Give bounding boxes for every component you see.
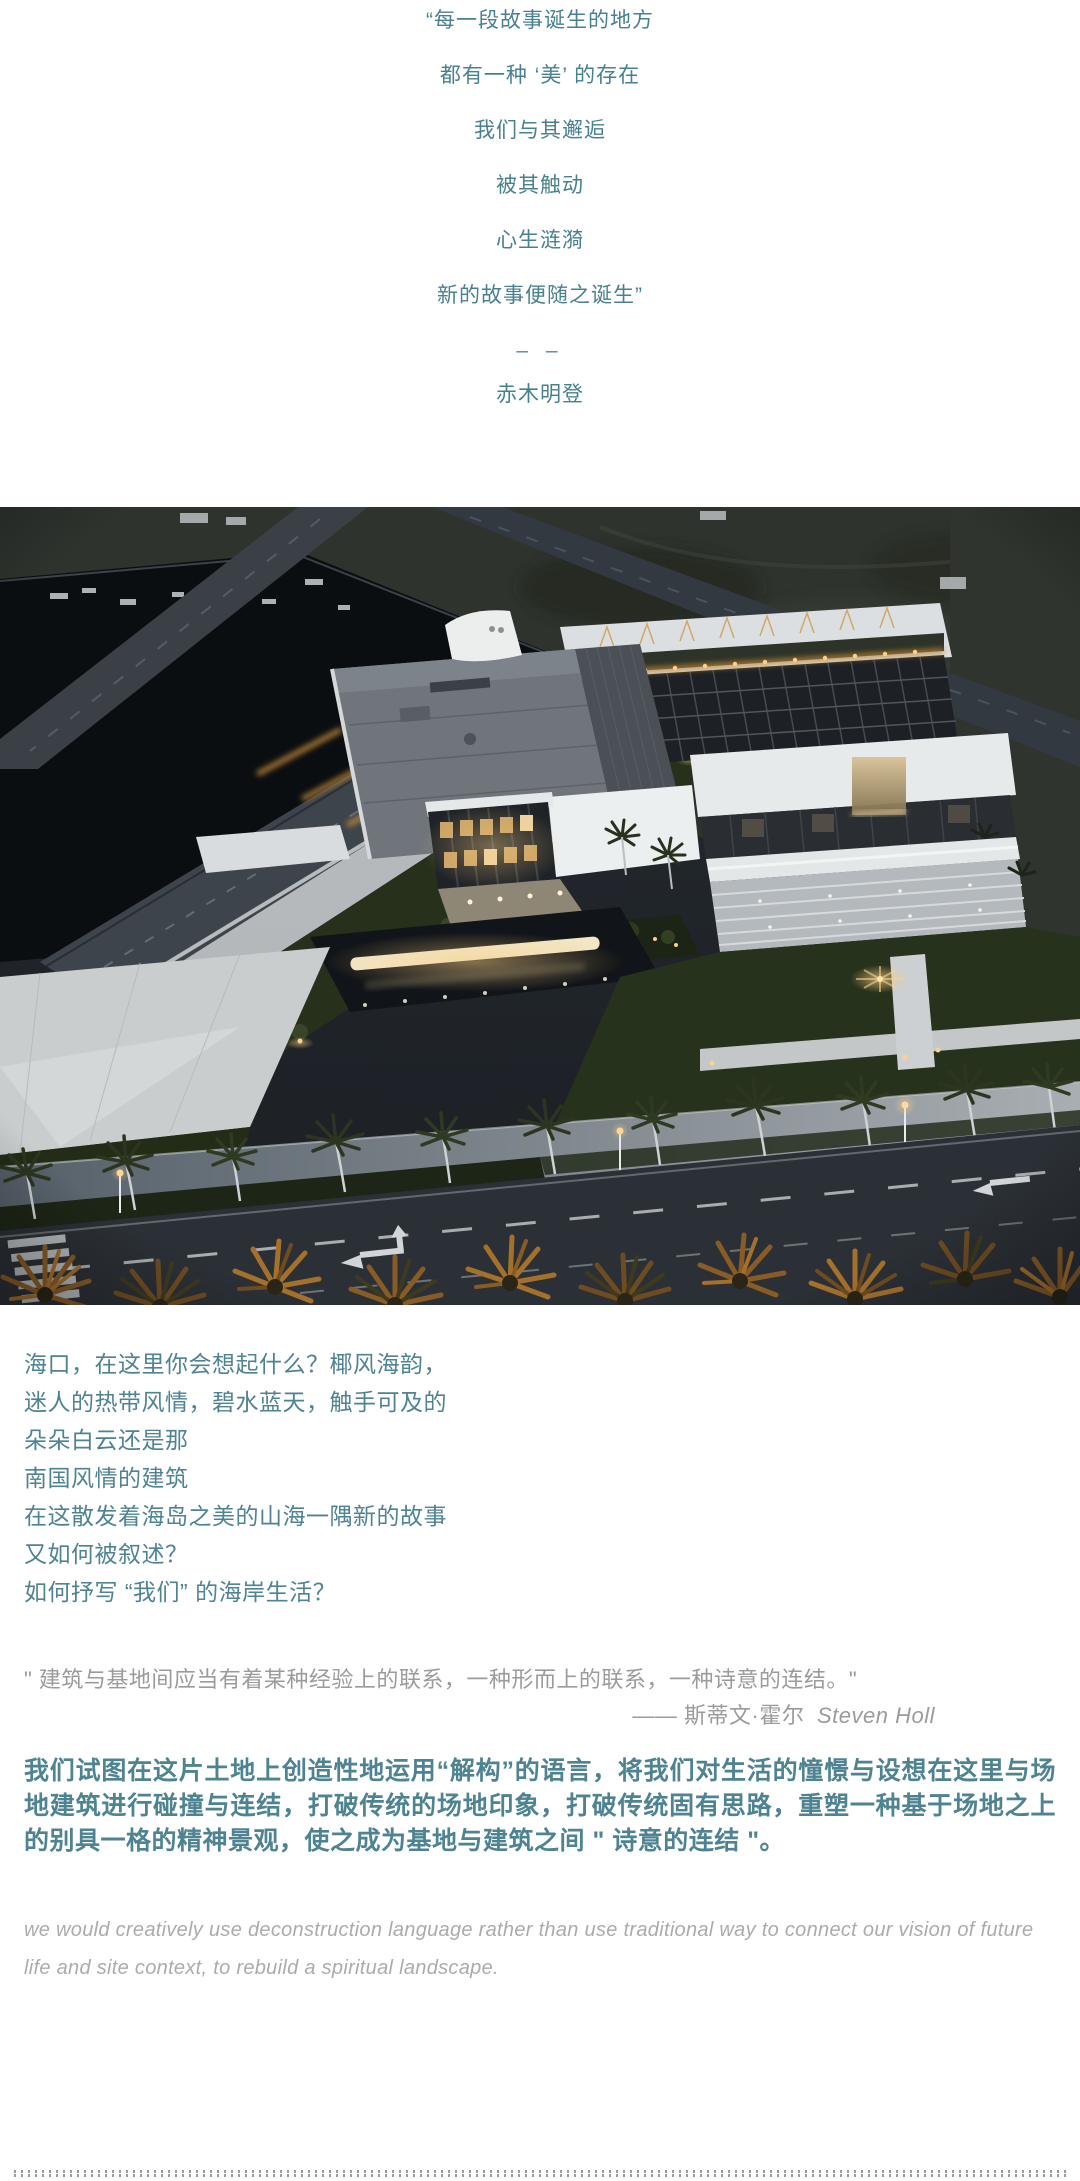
holl-quote-attribution: —— 斯蒂文·霍尔 Steven Holl bbox=[24, 1698, 1056, 1734]
poem-line: 我们与其邂逅 bbox=[0, 120, 1080, 142]
holl-quote-text: " 建筑与基地间应当有着某种经验上的联系，一种形而上的联系，一种诗意的连结。" bbox=[24, 1662, 1056, 1698]
poem-line: 新的故事便随之诞生” bbox=[0, 285, 1080, 307]
concept-text: 我们试图在这片土地上创造性地运用“解构”的语言，将我们对生活的憧憬与设想在这里与… bbox=[24, 1754, 1056, 1859]
poem-author: 赤木明登 bbox=[0, 384, 1080, 406]
opening-poem: “每一段故事诞生的地方 都有一种 ‘美’ 的存在 我们与其邂逅 被其触动 心生涟… bbox=[0, 0, 1080, 406]
intro-line: 迷人的热带风情，碧水蓝天，触手可及的 bbox=[24, 1383, 1056, 1421]
poem-line: “每一段故事诞生的地方 bbox=[0, 10, 1080, 32]
poem-line: 被其触动 bbox=[0, 175, 1080, 197]
concept-english-text: we would creatively use deconstruction l… bbox=[24, 1911, 1056, 1987]
intro-line: 如何抒写 “我们” 的海岸生活？ bbox=[24, 1573, 1056, 1611]
poem-divider: – – bbox=[0, 340, 1080, 362]
concept-paragraph: 我们试图在这片土地上创造性地运用“解构”的语言，将我们对生活的憧憬与设想在这里与… bbox=[0, 1754, 1080, 1859]
intro-line: 朵朵白云还是那 bbox=[24, 1421, 1056, 1459]
intro-line: 海口，在这里你会想起什么？椰风海韵， bbox=[24, 1345, 1056, 1383]
intro-line: 在这散发着海岛之美的山海一隅新的故事 bbox=[24, 1497, 1056, 1535]
holl-quote: " 建筑与基地间应当有着某种经验上的联系，一种形而上的联系，一种诗意的连结。" … bbox=[0, 1662, 1080, 1734]
dotted-divider bbox=[14, 2170, 1066, 2177]
attribution-zh: —— 斯蒂文·霍尔 bbox=[632, 1703, 804, 1728]
intro-paragraph: 海口，在这里你会想起什么？椰风海韵， 迷人的热带风情，碧水蓝天，触手可及的 朵朵… bbox=[0, 1325, 1080, 1611]
hero-photo[interactable] bbox=[0, 507, 1080, 1305]
poem-line: 都有一种 ‘美’ 的存在 bbox=[0, 65, 1080, 87]
intro-line: 南国风情的建筑 bbox=[24, 1459, 1056, 1497]
concept-english: we would creatively use deconstruction l… bbox=[0, 1911, 1080, 1987]
attribution-en: Steven Holl bbox=[817, 1703, 935, 1728]
intro-line: 又如何被叙述？ bbox=[24, 1535, 1056, 1573]
poem-line: 心生涟漪 bbox=[0, 230, 1080, 252]
article-page: “每一段故事诞生的地方 都有一种 ‘美’ 的存在 我们与其邂逅 被其触动 心生涟… bbox=[0, 0, 1080, 1987]
